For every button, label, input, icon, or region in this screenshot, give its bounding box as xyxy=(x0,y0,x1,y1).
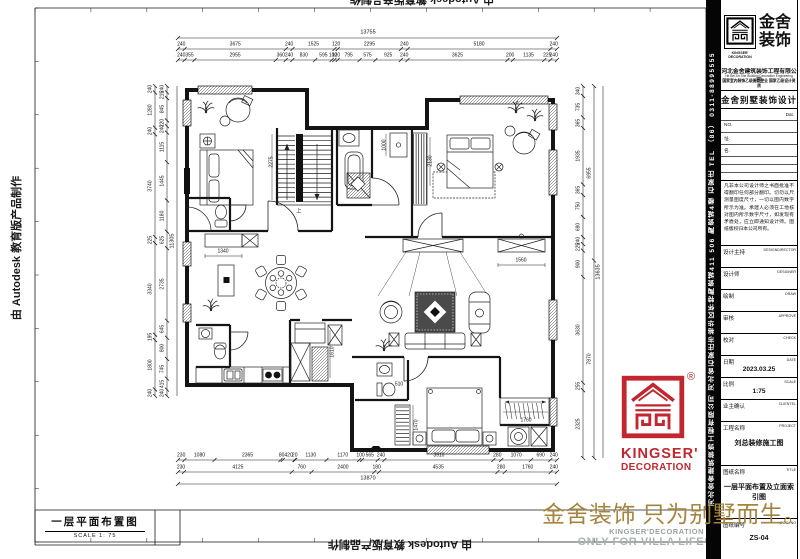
titleblock-row-4: 审核APPROVE xyxy=(721,311,797,333)
row-label-en: PROJECT xyxy=(779,424,796,428)
stamp-brand-line1: KINGSER' xyxy=(621,446,713,462)
kingser-logo-icon xyxy=(726,17,754,45)
date-hint: Dat. xyxy=(786,112,794,117)
row-label-en: DATE xyxy=(787,358,796,362)
row-label-en: SCALE xyxy=(784,380,796,384)
autodesk-watermark-left: 由 Autodesk 教育版产品制作 xyxy=(8,148,24,348)
row-label-en: CLIENTEL xyxy=(779,402,796,406)
kingser-stamp: ® KINGSER' DECORATION xyxy=(621,375,713,473)
row-label: 日期 xyxy=(723,358,734,366)
footer-tagline: ONLY FOR VILLA LIFE xyxy=(578,536,704,548)
row-value: 1:75 xyxy=(721,388,797,395)
outer-walls xyxy=(187,90,553,450)
row-label-en: DESIGNDIRECTOR xyxy=(764,248,796,252)
row-label: 设计主持 xyxy=(723,248,745,256)
brand-cn-line1: 金舍 xyxy=(759,14,791,32)
footer-brand-en: KINGSER'DECORATION xyxy=(609,527,704,536)
copyright-notice: 凡非本公司设计师之书面批准不得翻印任何部分翻印。切勿以尺测量图度尺寸，一切以图内… xyxy=(724,183,794,233)
drawing-title: 一层平面布置图 xyxy=(45,513,145,532)
drawing-title-box: 一层平面布置图 SCALE 1: 75 xyxy=(36,512,154,539)
titleblock-row-5: 校对CHECK xyxy=(721,333,797,355)
stamp-brand-line2: DECORATION xyxy=(621,462,713,473)
row-value: ZS-04 xyxy=(721,535,797,542)
row-label-en: DESIGNER xyxy=(777,270,796,274)
row-value: 刘总装修施工图 xyxy=(721,438,797,448)
titleblock-row-1: 设计主持DESIGNDIRECTOR xyxy=(721,245,797,267)
brand-en-sub: DECORATION xyxy=(723,55,757,59)
row-label: 绘制 xyxy=(723,292,734,300)
doors xyxy=(230,178,442,381)
row-value: 2023.03.25 xyxy=(721,366,797,373)
drawing-scale: SCALE 1: 75 xyxy=(36,533,154,539)
footer-slogan: 金舍装饰 只为别墅而生。 xyxy=(542,495,800,529)
titleblock-row-3: 绘制DRAW xyxy=(721,289,797,311)
registered-mark-icon: ® xyxy=(687,371,695,383)
furniture xyxy=(187,96,550,446)
row-label: 审核 xyxy=(723,314,734,322)
autodesk-watermark-top: 由 Autodesk 教育版产品制作 xyxy=(322,0,522,8)
autodesk-watermark-bottom: 由 Autodesk 教育版产品制作 xyxy=(300,537,500,553)
titleblock-logo-box xyxy=(724,15,756,49)
floor-plan-canvas xyxy=(0,0,800,559)
row-label-en: TITLE xyxy=(786,468,796,472)
sheet-border xyxy=(35,8,706,545)
row-label: 工程名称 xyxy=(723,424,745,432)
row-label-en: DRAW xyxy=(785,292,796,296)
windows xyxy=(183,86,557,454)
department-title: 金舍别墅装饰设计 xyxy=(721,94,797,106)
row-label-en: APPROVE xyxy=(779,314,796,318)
row-label: 业主确认 xyxy=(723,402,745,410)
brand-en-mini: KINGSER' DECORATION xyxy=(723,51,757,59)
titleblock-row-6: 日期DATE2023.03.25 xyxy=(721,355,797,377)
brand-cn-line2: 装饰 xyxy=(759,32,791,50)
generated-linework xyxy=(35,8,706,542)
company-sidebar: 河北金舍建筑装饰工程有限公司 河北省石家庄市裕华区怀特陶瓷城411 506 陶瓷… xyxy=(706,0,720,559)
field-name: 名. xyxy=(724,147,730,154)
kingser-stamp-logo-icon xyxy=(621,375,685,439)
row-label-en: CHECK xyxy=(783,336,796,340)
titleblock-row-2: 设计师DESIGNER xyxy=(721,267,797,289)
company-qualification: 国家室内装饰乙级施工企业 国家乙级设计资质 xyxy=(721,79,797,89)
row-label: 图纸名称 xyxy=(723,468,745,476)
field-no: NO. xyxy=(724,123,733,128)
titleblock-row-8: 业主确认CLIENTEL xyxy=(721,399,797,421)
titleblock-row-9: 工程名称PROJECT刘总装修施工图 xyxy=(721,421,797,465)
row-label: 校对 xyxy=(723,336,734,344)
title-block: 金舍 装饰 KINGSER' DECORATION 河北金舍建筑装饰工程有限公司… xyxy=(720,0,798,559)
drawing-sheet: 2403675240152512022952405180240240355295… xyxy=(0,0,800,559)
brand-cn: 金舍 装饰 xyxy=(759,14,791,50)
field-addr: 址. xyxy=(724,135,730,142)
row-label: 设计师 xyxy=(723,270,740,278)
titleblock-row-7: 比例SCALE1:75 xyxy=(721,377,797,399)
row-label: 比例 xyxy=(723,380,734,388)
